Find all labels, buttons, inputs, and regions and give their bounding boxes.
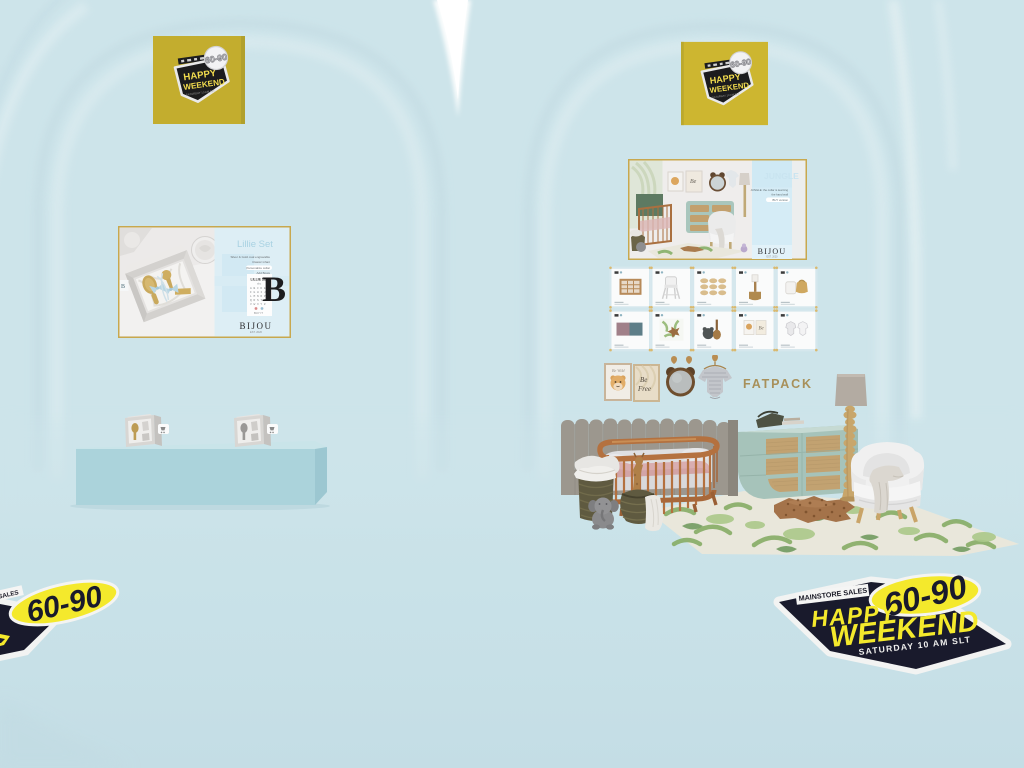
svg-text:EST. 2020: EST. 2020 (250, 330, 263, 334)
svg-text:BIJOU: BIJOU (239, 321, 272, 331)
svg-text:B: B (121, 284, 125, 290)
svg-text:Classic infant: Classic infant (252, 260, 270, 264)
svg-text:EST. 2020: EST. 2020 (766, 256, 778, 259)
svg-text:Silver & Gold oval engravable: Silver & Gold oval engravable (230, 255, 270, 259)
svg-text:JUNGLE: the collar is learning: JUNGLE: the collar is learning (751, 188, 789, 192)
svg-text:the hand wall: the hand wall (772, 193, 789, 197)
svg-text:Lillie Set: Lillie Set (237, 239, 273, 250)
svg-text:JUNGLE: JUNGLE (764, 171, 799, 181)
svg-text:B: B (262, 269, 286, 309)
svg-text:Be: Be (690, 179, 697, 185)
svg-text:Be: Be (759, 327, 765, 332)
svg-text:BUY IT: BUY IT (254, 311, 263, 315)
svg-text:BUY version: BUY version (773, 198, 789, 202)
